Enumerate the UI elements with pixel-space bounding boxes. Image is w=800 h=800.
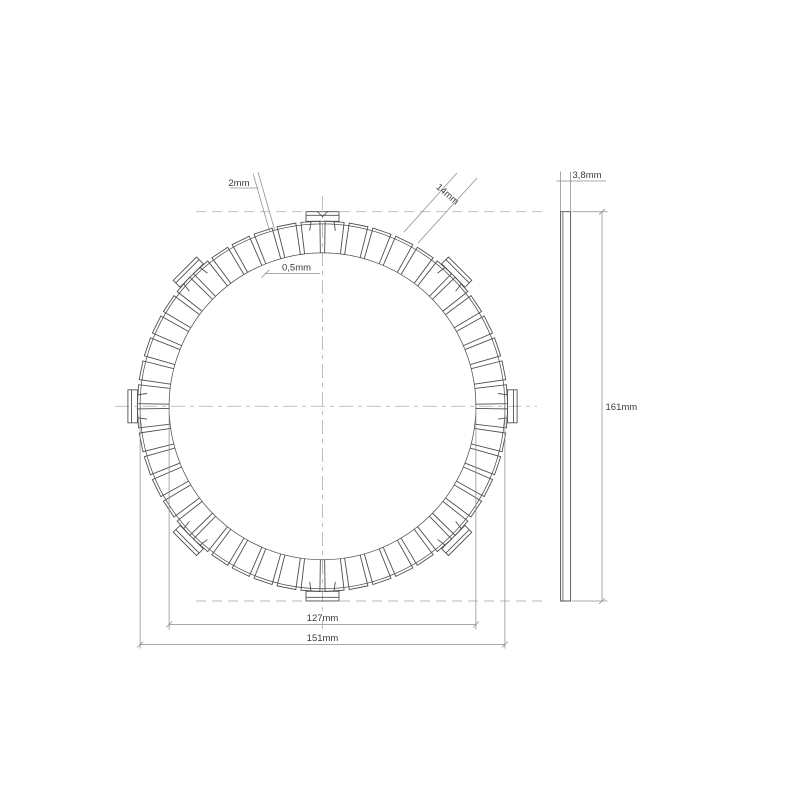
drive-tab [173, 257, 207, 291]
dimension-label-thickness: 3,8mm [573, 170, 602, 181]
dimension-overall-diameter: 161mm [572, 209, 637, 604]
drawing-sheet: 3,8mm161mm127mm151mm2mm0,5mm14mm [0, 0, 800, 800]
drive-tab [438, 521, 472, 555]
dimension-label-step: 0,5mm [282, 263, 311, 274]
side-view [561, 212, 571, 601]
dimension-label-groove-width: 2mm [228, 178, 249, 189]
dimension-thickness: 3,8mm [557, 170, 607, 211]
drive-tab [173, 521, 207, 555]
dimension-groove-width: 2mm [228, 172, 274, 232]
centerlines [115, 196, 546, 629]
dimension-label-overall-diameter: 161mm [606, 402, 638, 413]
dimension-step: 0,5mm [262, 263, 321, 278]
technical-drawing: 3,8mm161mm127mm151mm2mm0,5mm14mm [0, 0, 800, 800]
dimension-label-outer-diameter: 151mm [307, 633, 339, 644]
dimension-pad-width: 14mm [404, 173, 477, 243]
drive-tab [438, 257, 472, 291]
dimension-label-inner-diameter: 127mm [307, 613, 339, 624]
side-view-plate [561, 212, 571, 601]
